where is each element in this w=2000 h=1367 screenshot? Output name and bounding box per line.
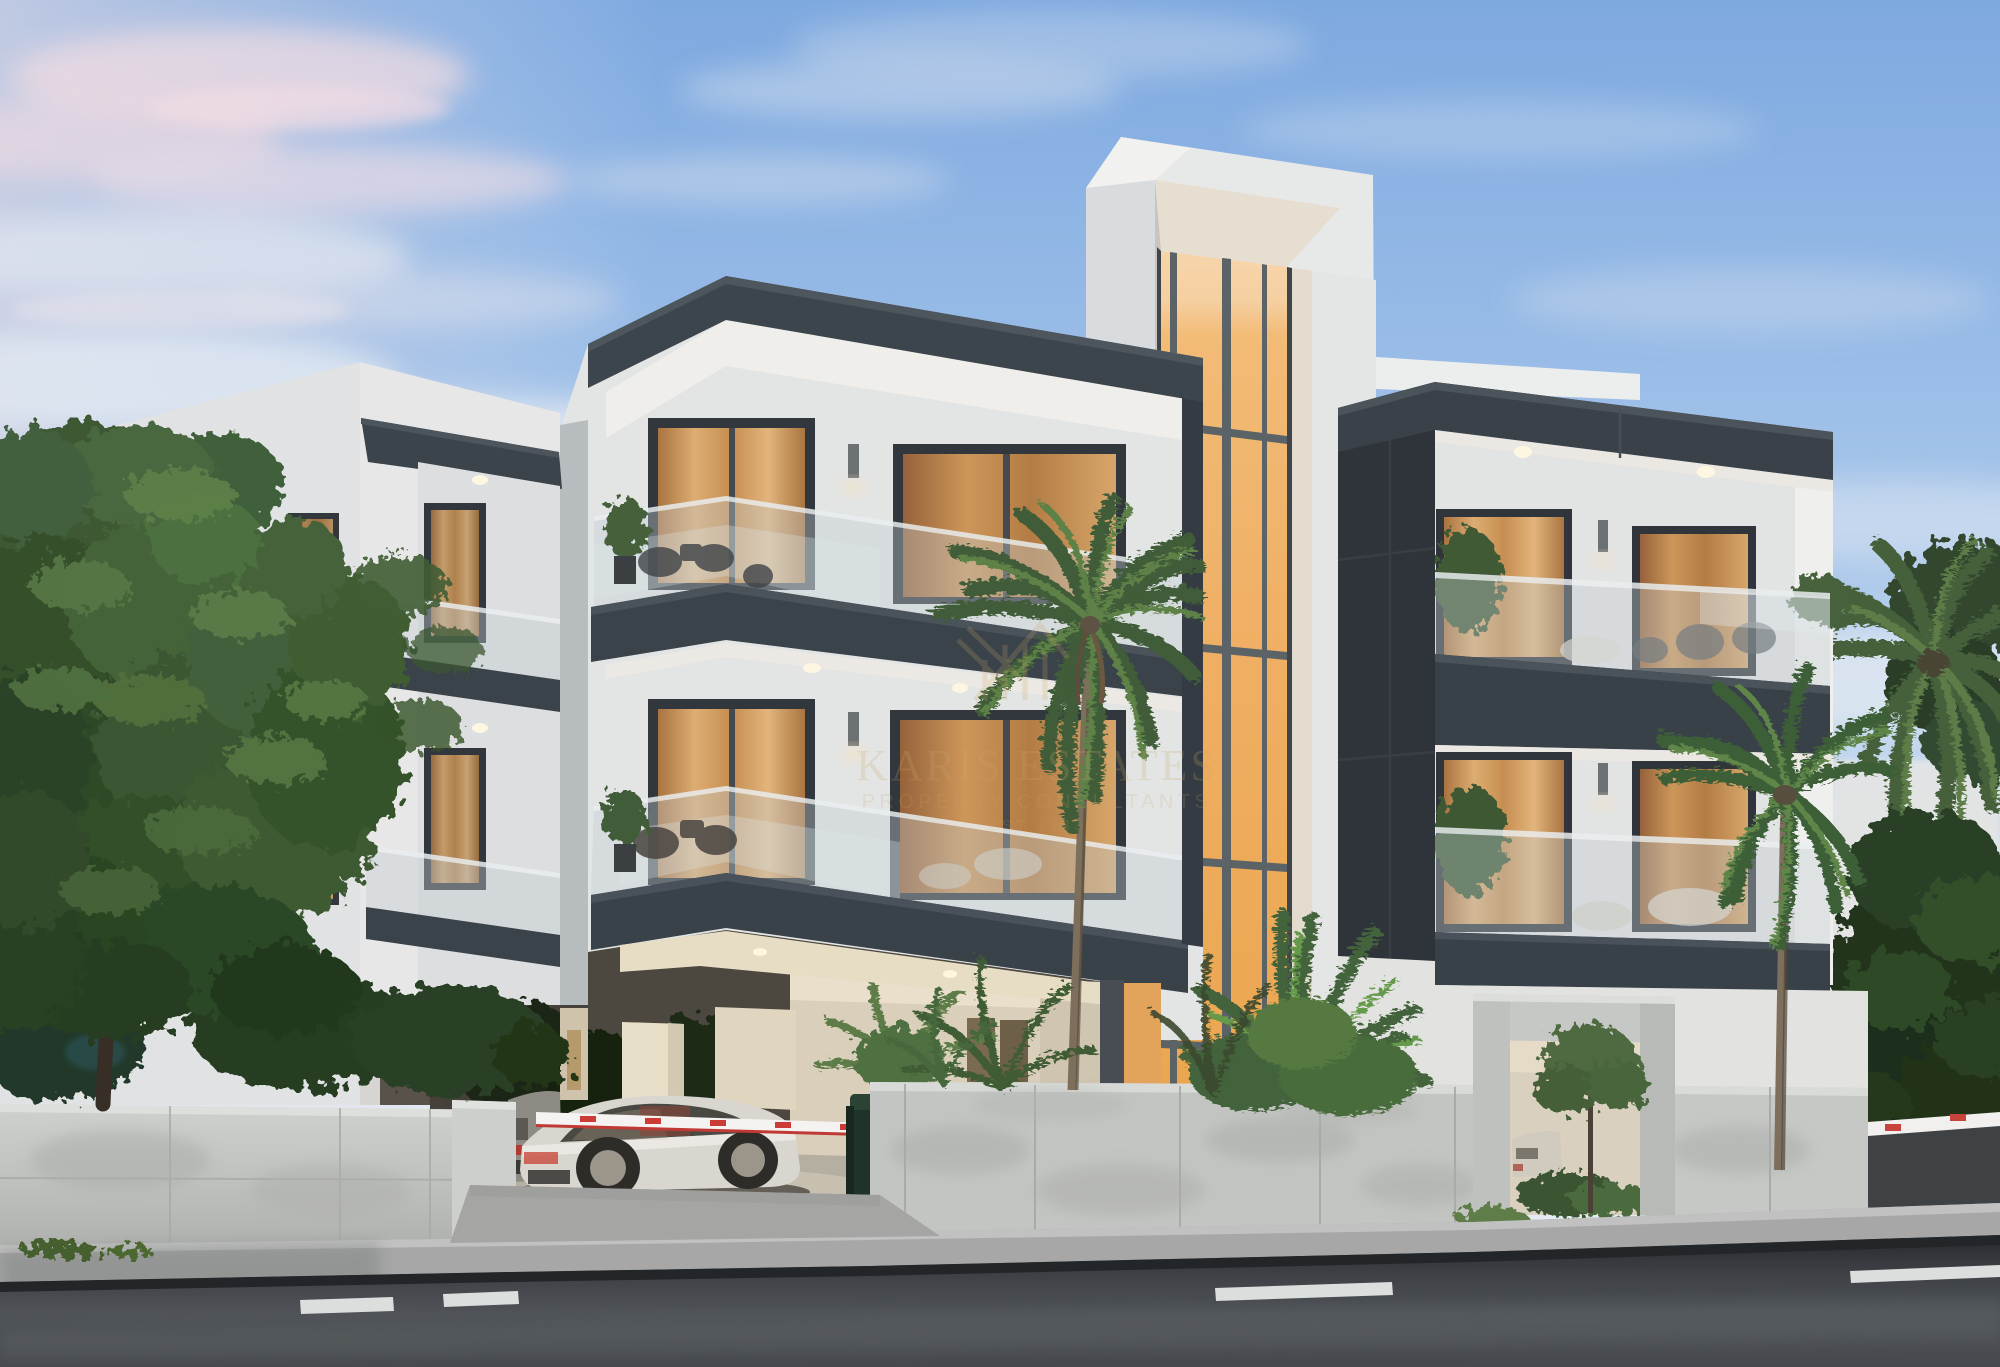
svg-text:KARIS ESTATES: KARIS ESTATES <box>856 741 1218 790</box>
svg-text:EST 1983: EST 1983 <box>988 817 1086 834</box>
svg-text:PROPERTY CONSULTANTS: PROPERTY CONSULTANTS <box>862 791 1213 813</box>
